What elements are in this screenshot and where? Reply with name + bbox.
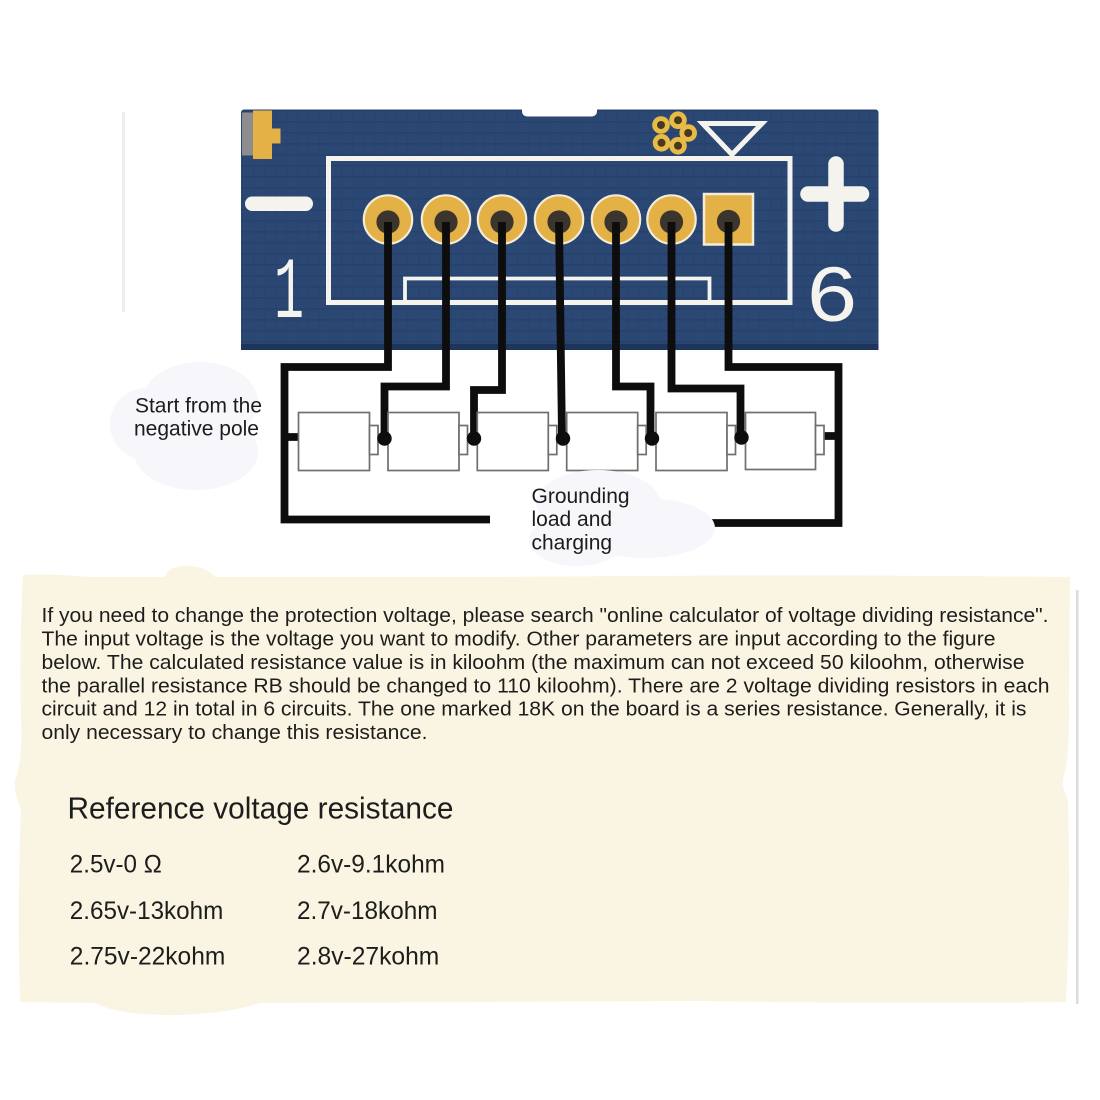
svg-text:the parallel resistance RB sho: the parallel resistance RB should be cha… [42, 675, 1050, 697]
svg-text:6: 6 [805, 255, 859, 346]
svg-text:2.6v-9.1kohm: 2.6v-9.1kohm [297, 851, 445, 879]
svg-text:2.65v-13kohm: 2.65v-13kohm [70, 897, 224, 925]
svg-text:The input voltage is the volta: The input voltage is the voltage you wan… [42, 629, 996, 651]
svg-text:If you need to change the prot: If you need to change the protection vol… [42, 605, 1049, 627]
svg-text:Start from the: Start from the [135, 395, 262, 418]
svg-text:2.8v-27kohm: 2.8v-27kohm [297, 943, 439, 971]
svg-text:load and: load and [532, 508, 613, 531]
svg-text:2.7v-18kohm: 2.7v-18kohm [297, 897, 438, 925]
svg-text:only necessary to change this: only necessary to change this resistance… [42, 722, 428, 744]
svg-text:1: 1 [274, 246, 304, 344]
svg-text:below. The calculated resistan: below. The calculated resistance value i… [42, 652, 1025, 674]
svg-text:Grounding: Grounding [532, 485, 630, 508]
svg-text:2.75v-22kohm: 2.75v-22kohm [70, 943, 226, 971]
svg-text:negative pole: negative pole [134, 418, 259, 441]
svg-text:2.5v-0 Ω: 2.5v-0 Ω [70, 851, 162, 879]
svg-text:Reference voltage resistance: Reference voltage resistance [68, 791, 454, 826]
svg-text:circuit and 12 in total in 6 c: circuit and 12 in total in 6 circuits. T… [42, 699, 1027, 721]
svg-text:charging: charging [532, 531, 613, 554]
